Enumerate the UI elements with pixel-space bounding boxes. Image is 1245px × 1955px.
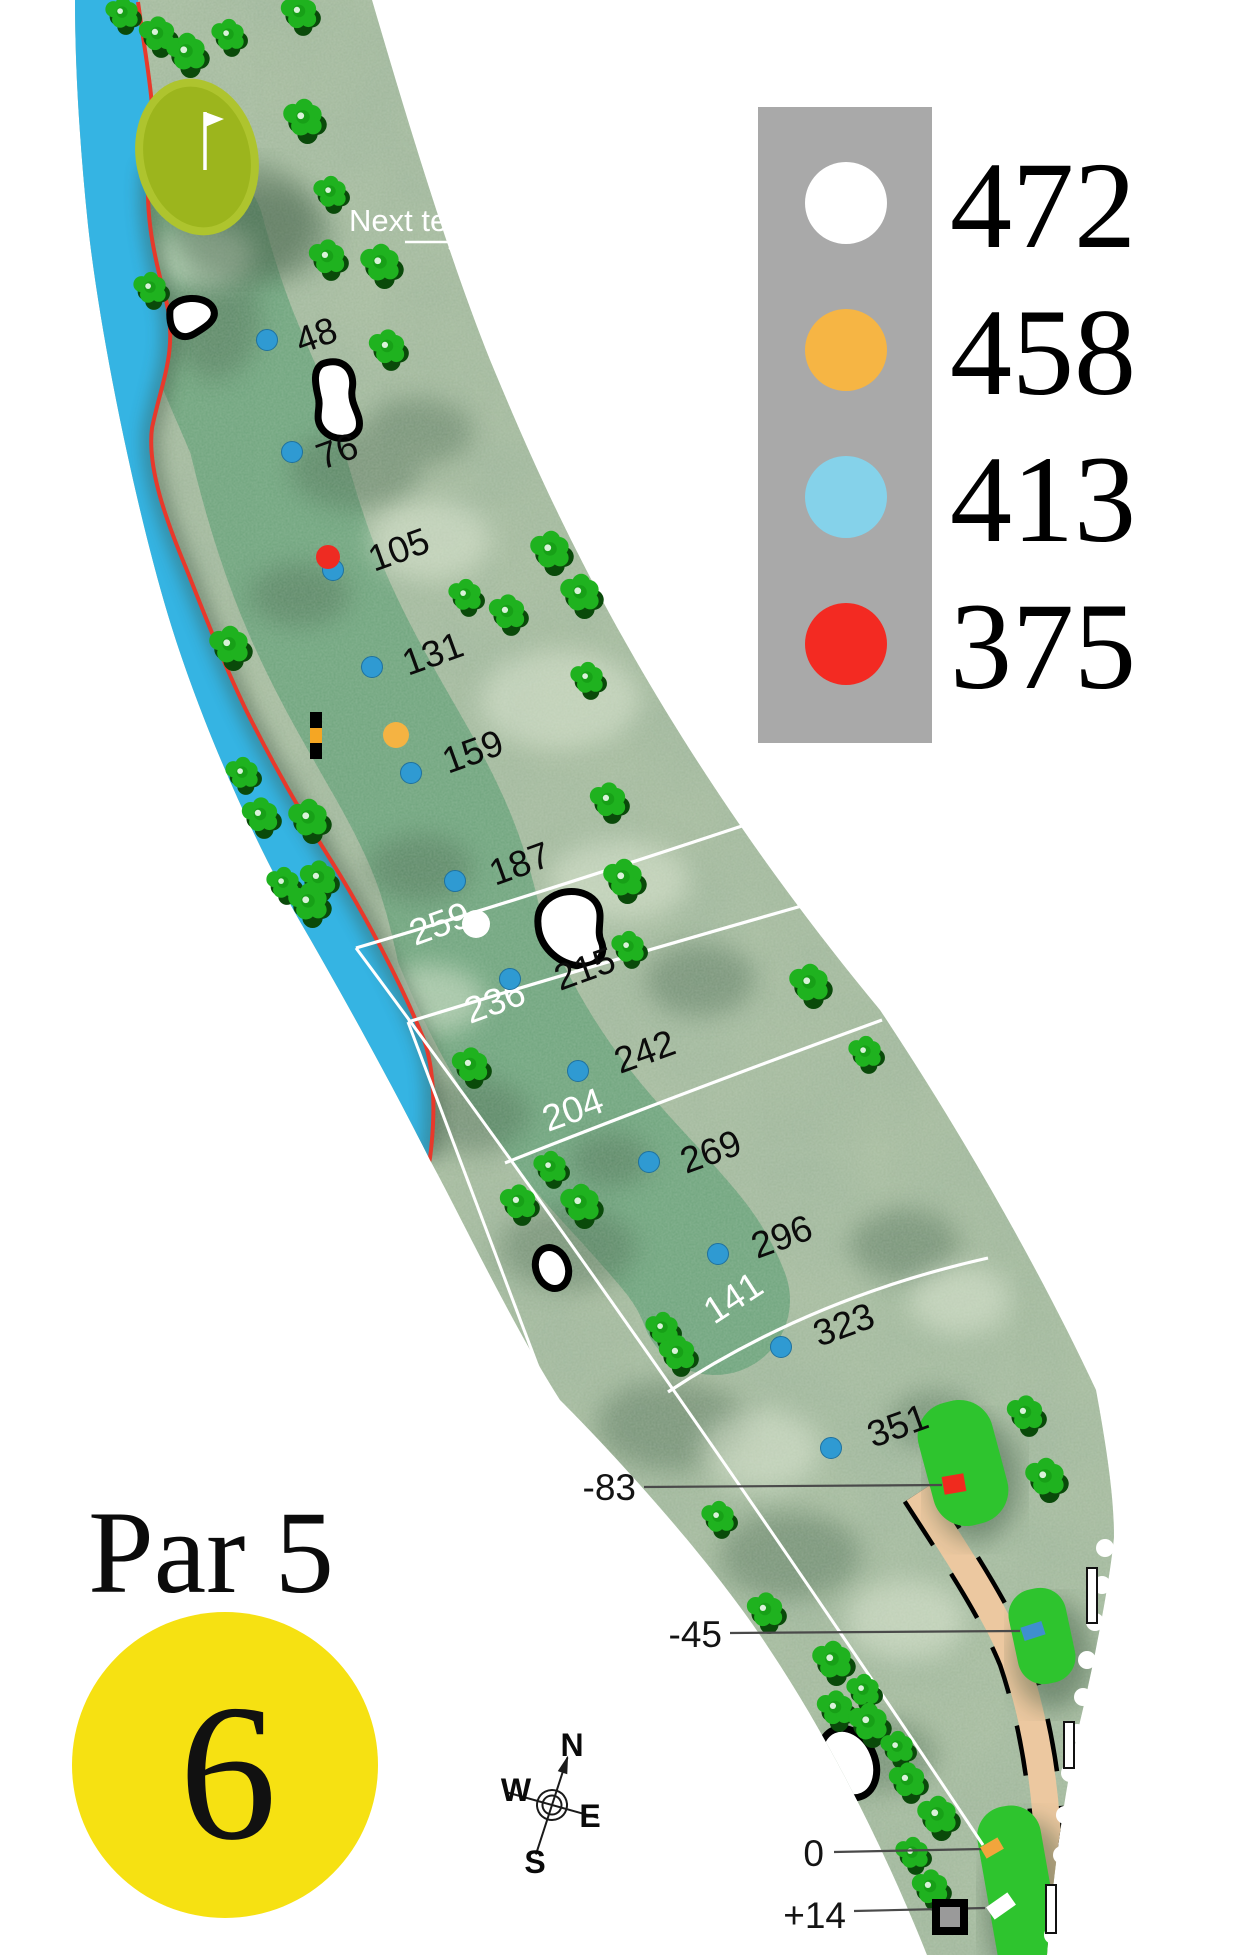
distance-dot: [771, 1337, 792, 1358]
legend-distance-blue: 413: [950, 431, 1136, 568]
ob-dot: [1053, 1846, 1071, 1864]
legend-swatch-white: [805, 162, 887, 244]
legend-panel: 472 458 413 375: [758, 107, 1136, 743]
distance-dot: [500, 969, 521, 990]
distance-dot: [568, 1061, 589, 1082]
legend-swatch-yellow: [805, 309, 887, 391]
distance-dot: [708, 1244, 729, 1265]
course-map-canvas: 259236204141 487610513115918721524226929…: [0, 0, 1245, 1955]
legend-swatch-blue: [805, 456, 887, 538]
distance-pole-icon: [310, 712, 322, 759]
tee-square-symbol: [936, 1903, 964, 1931]
offset-label: +14: [783, 1895, 846, 1936]
par-label: Par 5: [88, 1487, 334, 1618]
ob-stake: [1046, 1885, 1056, 1933]
tee-marker: [942, 1473, 967, 1495]
ob-dot: [1056, 1806, 1074, 1824]
distance-dot: [401, 763, 422, 784]
distance-dot: [257, 330, 278, 351]
ob-dot: [1074, 1688, 1092, 1706]
distance-dot: [445, 871, 466, 892]
next-tee-label: Next tee: [349, 203, 464, 238]
yellow-shot-marker: [383, 722, 409, 748]
legend-distance-red: 375: [950, 578, 1136, 715]
distance-dot: [282, 442, 303, 463]
distance-dot: [362, 657, 383, 678]
legend-distance-white: 472: [950, 137, 1136, 274]
offset-label: 0: [803, 1833, 824, 1874]
offset-label: -83: [583, 1467, 636, 1508]
compass-north-label: N: [560, 1727, 583, 1763]
offset-label: -45: [669, 1614, 722, 1655]
bunker: [315, 362, 359, 439]
legend-distance-yellow: 458: [950, 284, 1136, 421]
ob-dot: [1096, 1539, 1114, 1557]
legend-swatch-red: [805, 603, 887, 685]
golf-hole-map-page: 259236204141 487610513115918721524226929…: [0, 0, 1245, 1955]
compass-south-label: S: [524, 1844, 545, 1880]
compass-east-label: E: [579, 1798, 600, 1834]
white-shot-marker: [462, 910, 490, 938]
distance-dot: [639, 1152, 660, 1173]
compass-west-label: W: [501, 1772, 532, 1808]
distance-dot: [821, 1438, 842, 1459]
ob-dot: [1078, 1651, 1096, 1669]
hole-number: 6: [179, 1665, 277, 1881]
ob-stake: [1064, 1722, 1074, 1768]
red-shot-marker: [316, 545, 340, 569]
compass-rose: N W E S: [490, 1727, 613, 1880]
ob-stake: [1087, 1568, 1097, 1623]
hole-number-badge: 6: [72, 1612, 378, 1918]
